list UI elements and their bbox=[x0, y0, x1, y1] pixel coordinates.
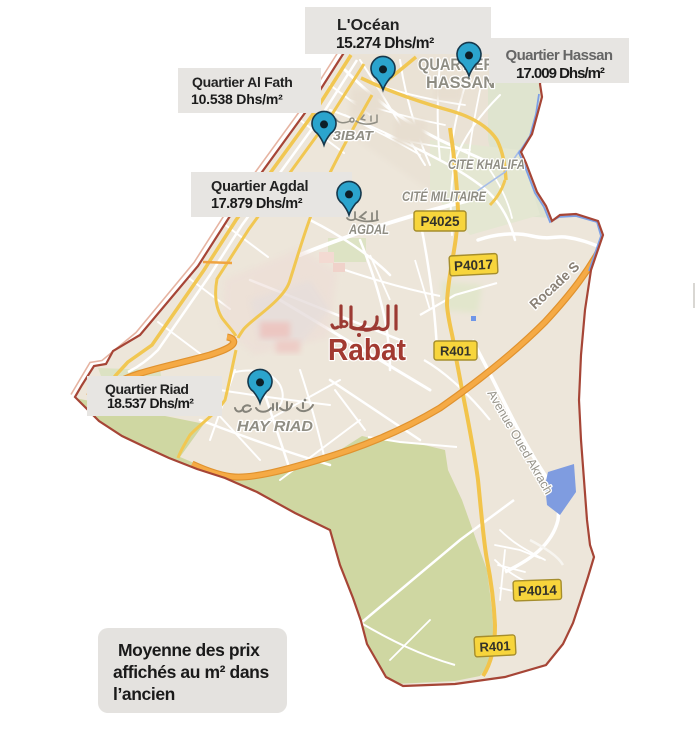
svg-text:17.879 Dhs/m²: 17.879 Dhs/m² bbox=[211, 196, 303, 212]
svg-text:Quartier Al Fath: Quartier Al Fath bbox=[192, 74, 292, 90]
svg-text:CITÉ MILITAIRE: CITÉ MILITAIRE bbox=[402, 188, 487, 204]
svg-text:R401: R401 bbox=[440, 344, 471, 359]
svg-text:P4017: P4017 bbox=[454, 257, 494, 274]
svg-text:3IBAT: 3IBAT bbox=[333, 128, 374, 143]
svg-text:QUARTIER: QUARTIER bbox=[418, 55, 494, 74]
svg-text:17.009 Dhs/m²: 17.009 Dhs/m² bbox=[516, 65, 605, 82]
svg-text:Quartier Agdal: Quartier Agdal bbox=[211, 179, 308, 195]
svg-text:affichés au m² dans: affichés au m² dans bbox=[113, 662, 269, 682]
svg-text:HAY RIAD: HAY RIAD bbox=[237, 418, 313, 435]
svg-text:P4014: P4014 bbox=[518, 582, 558, 598]
svg-text:L'Océan: L'Océan bbox=[337, 17, 400, 34]
svg-text:P4025: P4025 bbox=[420, 214, 460, 229]
svg-text:HASSAN: HASSAN bbox=[426, 73, 495, 92]
svg-text:18.537 Dhs/m²: 18.537 Dhs/m² bbox=[107, 395, 194, 411]
svg-text:Rabat: Rabat bbox=[328, 332, 406, 367]
svg-text:CITE KHALIFA: CITE KHALIFA bbox=[448, 156, 525, 172]
svg-text:l’ancien: l’ancien bbox=[113, 684, 175, 704]
svg-text:Moyenne des prix: Moyenne des prix bbox=[118, 640, 260, 660]
svg-text:10.538 Dhs/m²: 10.538 Dhs/m² bbox=[191, 91, 283, 107]
svg-text:Quartier Hassan: Quartier Hassan bbox=[506, 47, 613, 64]
svg-text:AGDAL: AGDAL bbox=[348, 221, 389, 237]
svg-text:R401: R401 bbox=[479, 638, 511, 655]
svg-text:15.274 Dhs/m²: 15.274 Dhs/m² bbox=[336, 35, 434, 52]
